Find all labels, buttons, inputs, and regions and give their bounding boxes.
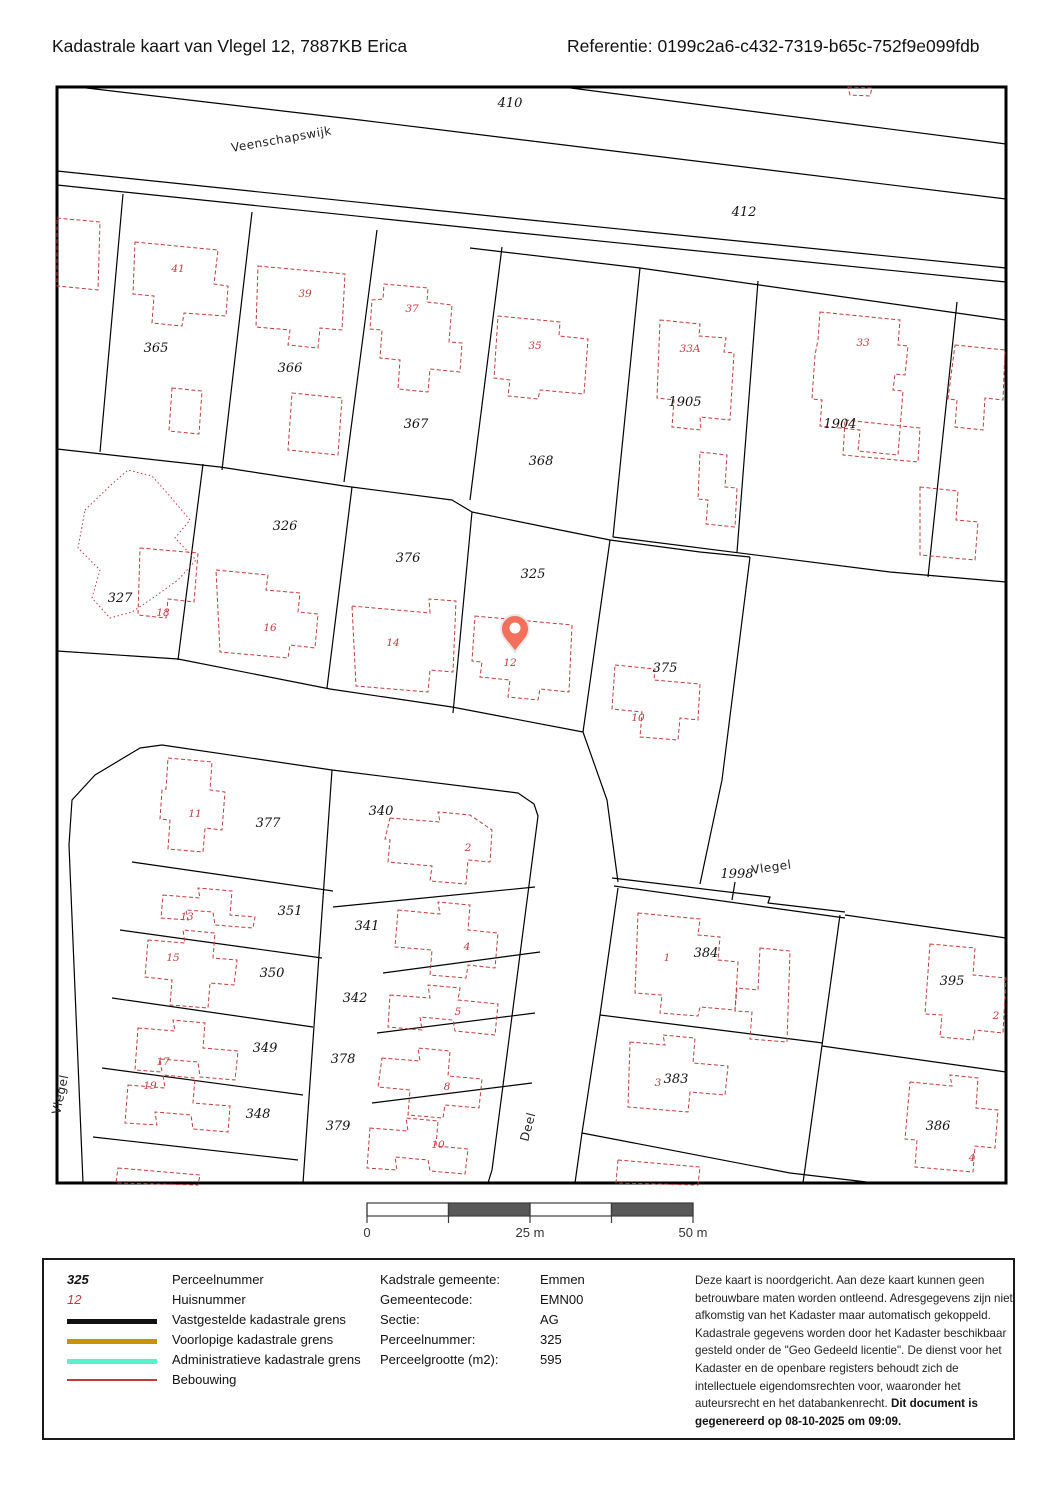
parcel-number-label: 351	[278, 904, 303, 919]
house-number-label: 4	[463, 941, 471, 953]
house-number-label: 16	[263, 622, 277, 634]
legend-label: Vastgestelde kadastrale grens	[172, 1310, 346, 1330]
parcel-number-label: 327	[108, 591, 134, 606]
parcel-number-label: 395	[940, 974, 965, 989]
building-outline	[812, 312, 908, 455]
building-outline	[160, 758, 225, 852]
parcel-boundary-line	[78, 87, 1006, 199]
parcel-boundary-line	[822, 1046, 1006, 1072]
parcel-number-label: 367	[404, 417, 430, 432]
parcel-number-label: 1904	[823, 417, 856, 432]
info-value: Emmen	[540, 1270, 585, 1290]
parcel-boundary-line	[102, 1068, 303, 1095]
building-outline	[920, 487, 978, 560]
parcel-boundary-line	[69, 745, 538, 1183]
building-outline	[135, 1020, 238, 1080]
location-pin-hole	[510, 623, 521, 634]
house-number-label: 19	[143, 1080, 157, 1092]
parcel-number-label: 368	[529, 454, 554, 469]
parcel-number-label: 340	[369, 804, 394, 819]
building-outline	[948, 345, 1005, 430]
building-outline	[352, 599, 456, 692]
building-outline	[367, 1118, 468, 1174]
street-name-label: Deel	[517, 1111, 538, 1143]
building-outline	[657, 320, 734, 430]
parcel-boundary-line	[222, 212, 252, 470]
parcel-number-label: 341	[355, 919, 380, 934]
kadaster-document-page: { "header": { "title": "Kadastrale kaart…	[0, 0, 1059, 1498]
cadastral-map: VeenschapswijkVlegelVlegelDeel4104123653…	[0, 0, 1059, 1250]
building-outline	[169, 388, 202, 434]
building-outline	[388, 985, 498, 1035]
legend-panel: 325 Perceelnummer Kadstrale gemeente: Em…	[42, 1258, 1015, 1440]
house-number-label: 10	[631, 712, 645, 724]
legend-label: Voorlopige kadastrale grens	[172, 1330, 333, 1350]
info-value: EMN00	[540, 1290, 583, 1310]
house-number-label: 39	[298, 288, 312, 300]
house-number-label: 13	[180, 911, 194, 923]
parcel-boundary-line	[57, 171, 1006, 268]
parcel-boundary-line	[563, 87, 1006, 144]
parcel-boundary-line	[327, 487, 352, 688]
house-number-label: 37	[405, 303, 419, 315]
parcel-boundary-line	[583, 732, 618, 882]
house-number-label: 8	[444, 1081, 451, 1093]
house-number-label: 35	[528, 340, 542, 352]
parcel-number-label: 326	[273, 519, 298, 534]
parcel-number-label: 376	[396, 551, 421, 566]
parcel-boundary-line	[470, 248, 1006, 320]
disclaimer-text: Deze kaart is noordgericht. Aan deze kaa…	[695, 1272, 1015, 1430]
building-outline	[378, 1048, 482, 1118]
house-number-label: 33	[856, 337, 870, 349]
building-outline	[635, 913, 738, 1016]
legend-label: Huisnummer	[172, 1290, 246, 1310]
house-number-label: 14	[386, 637, 399, 649]
building-outline	[256, 266, 345, 348]
scalebar-label: 50 m	[679, 1225, 708, 1240]
parcel-boundary-line	[178, 464, 203, 660]
house-number-label: 2	[464, 842, 472, 854]
parcel-number-label: 383	[664, 1072, 689, 1087]
house-number-label: 33A	[680, 343, 701, 355]
parcel-number-label: 384	[694, 946, 719, 961]
house-number-label: 12	[503, 657, 517, 669]
parcel-boundary-line	[803, 915, 840, 1183]
info-value: 595	[540, 1350, 562, 1370]
parcel-boundary-line	[470, 247, 502, 500]
building-outline	[161, 888, 255, 928]
parcel-number-label: 1998	[720, 867, 753, 882]
house-number-label: 1	[664, 952, 671, 964]
street-name-label: Veenschapswijk	[230, 123, 333, 154]
info-label: Kadstrale gemeente:	[380, 1270, 500, 1290]
parcel-boundary-line	[57, 185, 1006, 282]
scalebar-segment	[449, 1203, 531, 1216]
parcel-number-label: 379	[326, 1119, 351, 1134]
building-outline	[78, 470, 196, 618]
street-name-label: Vlegel	[49, 1073, 71, 1115]
info-label: Perceelnummer:	[380, 1330, 475, 1350]
parcel-number-label: 375	[653, 661, 678, 676]
building-outline	[216, 570, 318, 658]
parcel-boundary-line	[600, 1015, 823, 1043]
house-number-label: 11	[188, 808, 201, 820]
building-outline	[395, 902, 498, 978]
house-number-label: 4	[968, 1152, 976, 1164]
building-outline	[370, 284, 462, 392]
street-name-label: Vlegel	[750, 858, 792, 877]
parcel-number-label: 349	[253, 1041, 278, 1056]
info-value: AG	[540, 1310, 559, 1330]
parcel-number-label: 410	[497, 96, 523, 111]
building-outline	[735, 948, 790, 1042]
parcel-number-label: 350	[260, 966, 285, 981]
parcel-number-label: 342	[343, 991, 368, 1006]
house-number-label: 15	[166, 952, 180, 964]
parcel-number-label: 386	[926, 1119, 951, 1134]
parcel-number-label: 377	[256, 816, 282, 831]
building-outline	[612, 665, 700, 740]
building-outline	[925, 944, 1006, 1040]
parcel-number-label: 325	[521, 567, 546, 582]
building-outline	[288, 393, 342, 455]
house-number-label: 2	[992, 1010, 1000, 1022]
parcel-boundary-line	[613, 268, 640, 537]
house-number-label: 18	[156, 607, 170, 619]
parcel-number-label: 366	[278, 361, 303, 376]
building-outline	[698, 452, 737, 527]
scalebar-segment	[612, 1203, 694, 1216]
parcel-number-label: 412	[731, 205, 757, 220]
parcel-boundary-line	[612, 878, 845, 912]
huisnummer-sample: 12	[67, 1290, 157, 1310]
building-outline	[133, 242, 228, 326]
house-number-label: 3	[655, 1077, 662, 1089]
building-outline	[905, 1075, 998, 1172]
legend-label: Administratieve kadastrale grens	[172, 1350, 361, 1370]
parcel-boundary-line	[333, 887, 535, 907]
parcel-boundary-line	[700, 557, 750, 884]
building-outline	[385, 812, 492, 884]
parcel-boundary-line	[372, 1083, 532, 1103]
parcel-number-label: 1905	[668, 395, 701, 410]
building-outline	[145, 930, 237, 1008]
info-label: Gemeentecode:	[380, 1290, 473, 1310]
scalebar-segment	[530, 1203, 612, 1216]
parcel-boundary-line	[93, 1137, 298, 1160]
building-outline	[616, 1160, 700, 1185]
house-number-label: 41	[170, 263, 184, 275]
info-label: Sectie:	[380, 1310, 420, 1330]
legend-label: Perceelnummer	[172, 1270, 264, 1290]
scalebar-label: 0	[363, 1225, 370, 1240]
parcel-boundary-line	[344, 230, 377, 482]
scalebar-label: 25 m	[516, 1225, 545, 1240]
parcel-boundary-line	[132, 862, 333, 891]
building-outline	[57, 218, 100, 290]
parcel-number-label: 378	[331, 1052, 356, 1067]
info-label: Perceelgrootte (m2):	[380, 1350, 499, 1370]
map-border	[57, 87, 1006, 1183]
parcel-number-label: 348	[246, 1107, 271, 1122]
parcel-boundary-line	[383, 952, 540, 973]
building-outline	[494, 316, 588, 399]
parcel-boundary-line	[582, 1133, 875, 1183]
legend-label: Bebouwing	[172, 1370, 236, 1390]
parcel-boundary-line	[583, 540, 610, 732]
disclaimer-body: Deze kaart is noordgericht. Aan deze kaa…	[695, 1274, 1013, 1410]
parcel-boundary-line	[845, 915, 1006, 938]
parcel-boundary-line	[120, 930, 322, 958]
house-number-label: 5	[455, 1006, 462, 1018]
parcel-boundary-line	[614, 886, 845, 918]
parcel-boundary-line	[613, 537, 1006, 582]
parcel-boundary-line	[732, 882, 735, 900]
info-value: 325	[540, 1330, 562, 1350]
parcel-boundary-line	[100, 194, 123, 452]
parcel-boundary-line	[928, 302, 957, 577]
parcel-boundary-line	[112, 998, 313, 1027]
house-number-label: 10	[431, 1139, 445, 1151]
parcel-boundary-line	[737, 281, 758, 552]
house-number-label: 17	[156, 1056, 170, 1068]
parcel-number-label: 365	[144, 341, 169, 356]
perceelnummer-sample: 325	[67, 1270, 157, 1290]
scalebar-segment	[367, 1203, 449, 1216]
